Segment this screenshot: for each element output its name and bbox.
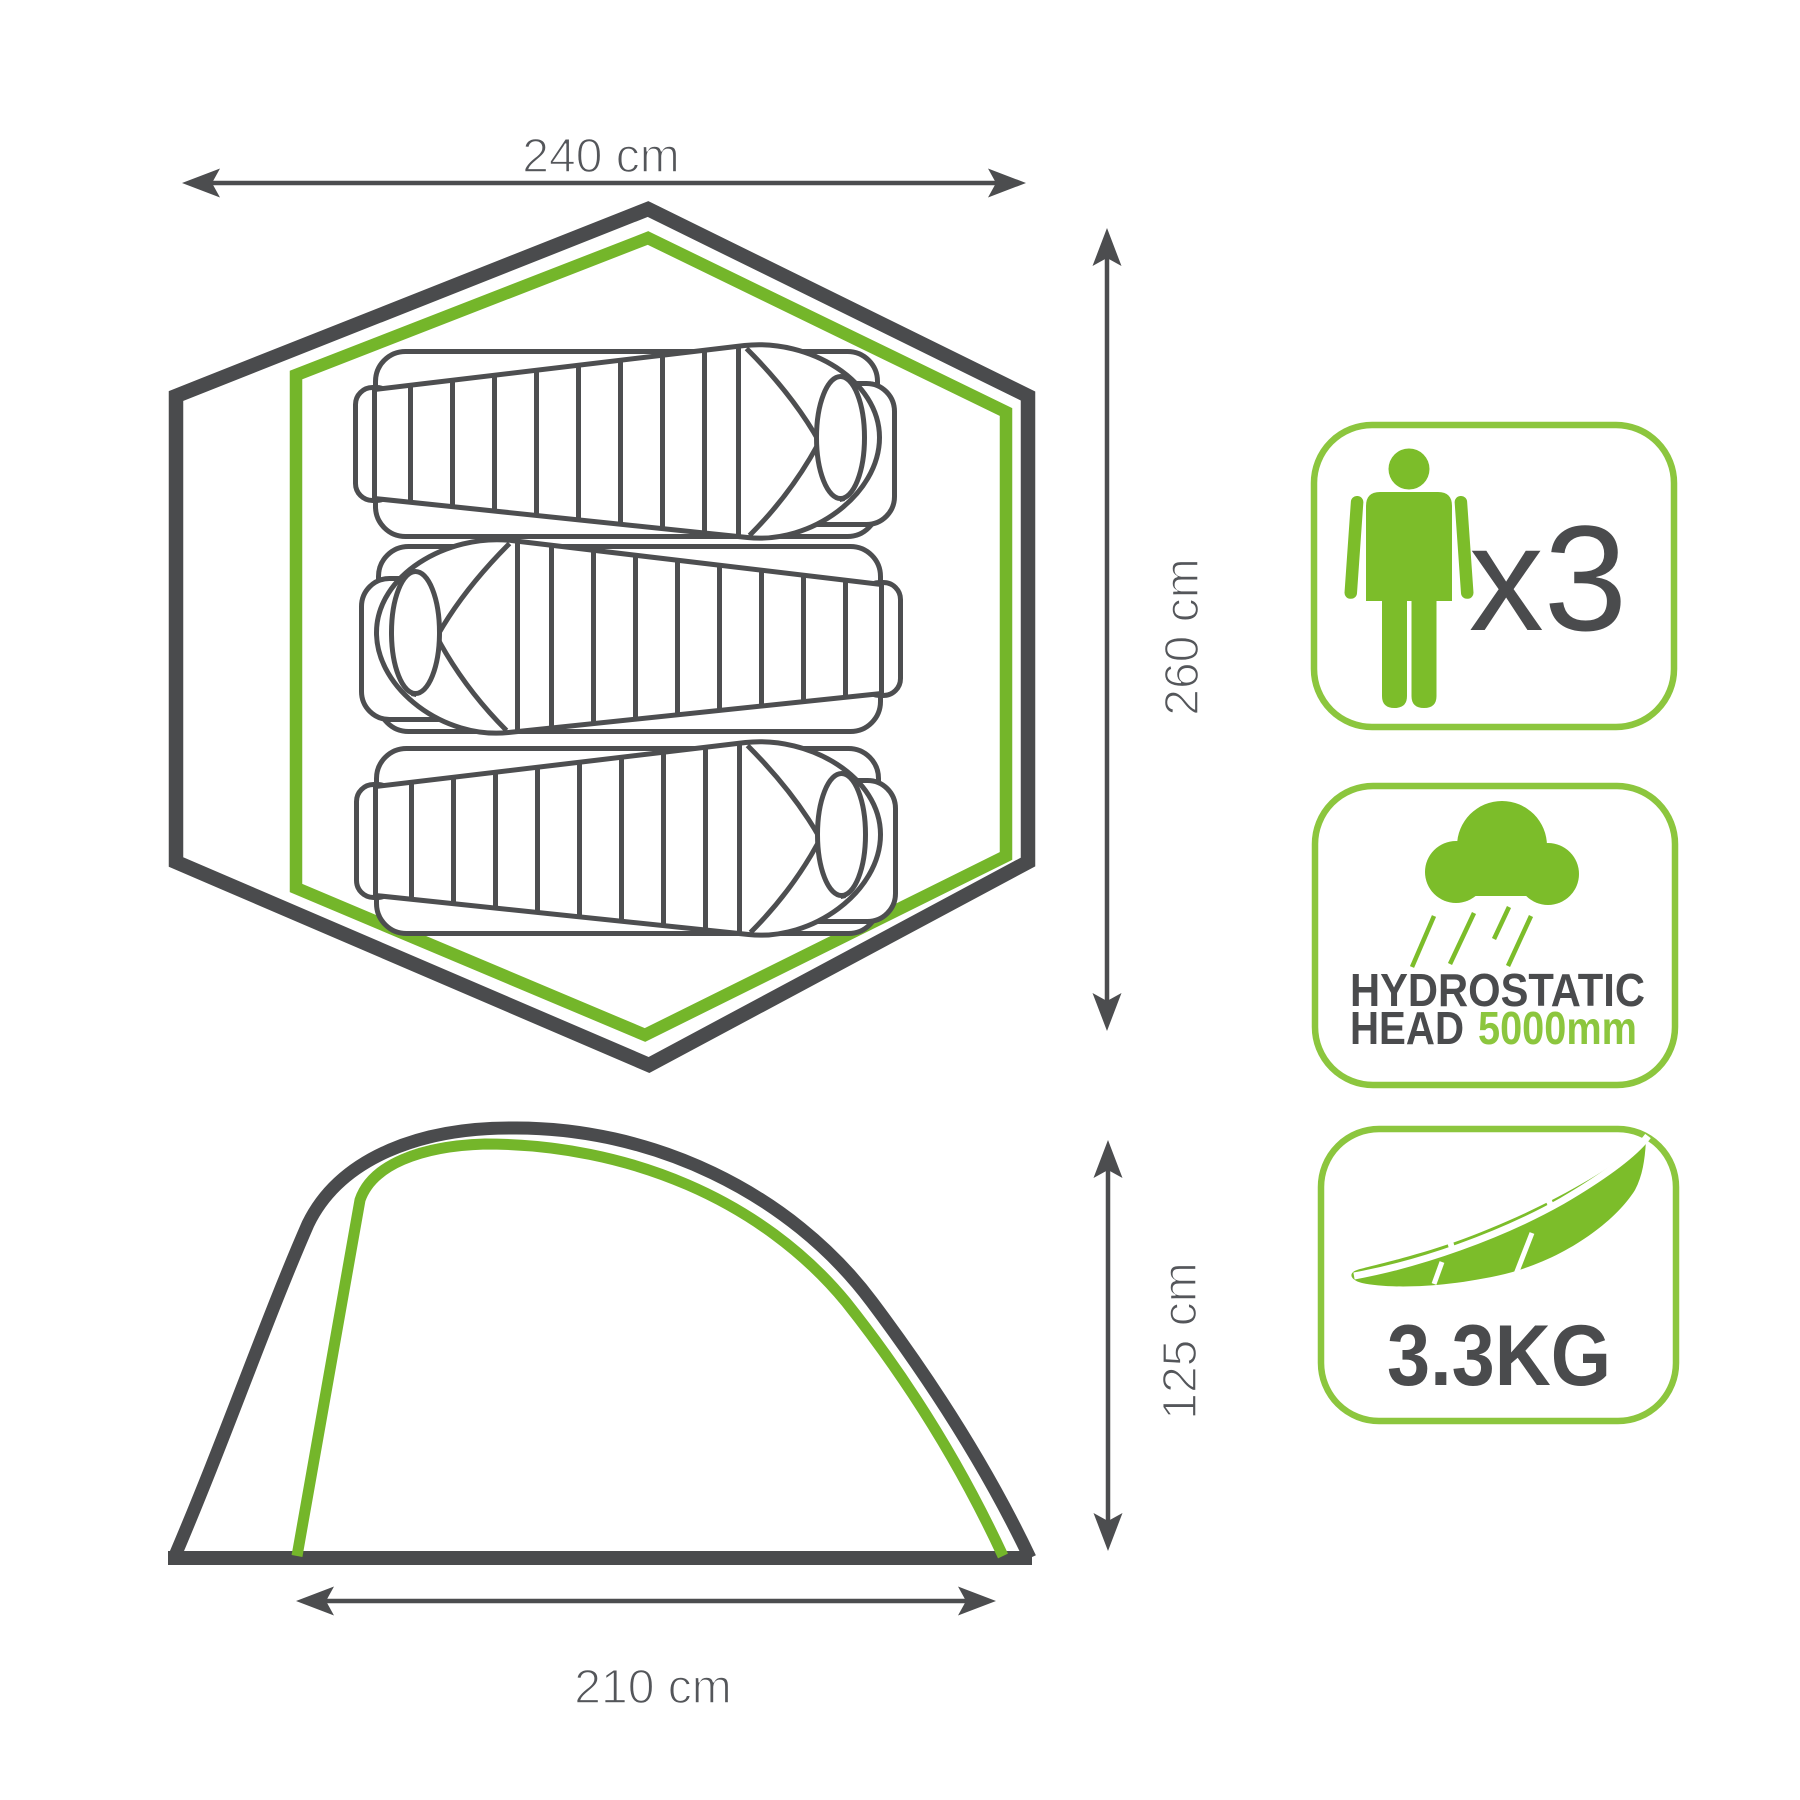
svg-text:125 cm: 125 cm (1154, 1262, 1207, 1419)
svg-text:260 cm: 260 cm (1156, 558, 1209, 715)
svg-text:5000mm: 5000mm (1478, 1002, 1637, 1054)
svg-text:210 cm: 210 cm (574, 1661, 731, 1714)
svg-text:240 cm: 240 cm (522, 130, 679, 183)
svg-text:3.3KG: 3.3KG (1387, 1308, 1611, 1404)
svg-text:HEAD: HEAD (1350, 1002, 1464, 1054)
svg-text:x3: x3 (1469, 494, 1627, 662)
